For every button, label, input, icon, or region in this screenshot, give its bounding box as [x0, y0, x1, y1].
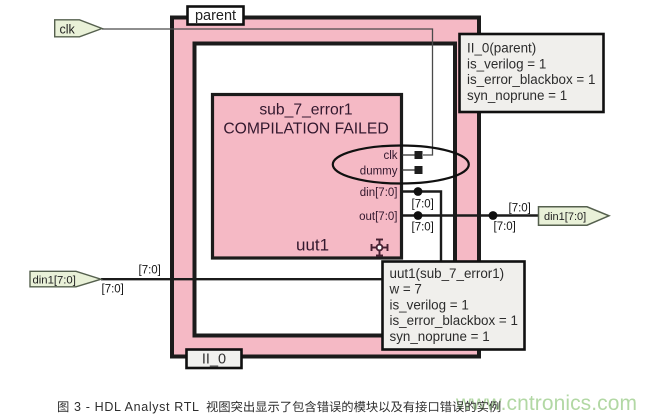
svg-text:sub_7_error1: sub_7_error1 [259, 102, 352, 119]
svg-text:out[7:0]: out[7:0] [359, 211, 397, 223]
svg-text:[7:0]: [7:0] [102, 284, 124, 296]
svg-text:II_0: II_0 [202, 352, 226, 368]
svg-text:syn_noprune = 1: syn_noprune = 1 [390, 329, 490, 344]
svg-text:is_error_blackbox = 1: is_error_blackbox = 1 [467, 72, 595, 87]
svg-text:is_verilog = 1: is_verilog = 1 [467, 56, 546, 71]
svg-text:II_0(parent): II_0(parent) [467, 41, 536, 56]
svg-text:3 - HDL Analyst RTL: 3 - HDL Analyst RTL [74, 400, 199, 414]
svg-text:COMPILATION FAILED: COMPILATION FAILED [223, 121, 388, 138]
svg-text:www.cntronics.com: www.cntronics.com [455, 392, 637, 415]
svg-text:din1[7:0]: din1[7:0] [544, 211, 586, 223]
svg-text:parent: parent [195, 8, 236, 24]
svg-text:din[7:0]: din[7:0] [360, 187, 398, 199]
svg-text:is_error_blackbox = 1: is_error_blackbox = 1 [390, 313, 518, 328]
svg-text:dummy: dummy [360, 166, 398, 178]
svg-text:[7:0]: [7:0] [139, 265, 161, 277]
svg-text:[7:0]: [7:0] [509, 203, 531, 215]
svg-text:is_verilog = 1: is_verilog = 1 [390, 297, 469, 312]
svg-text:[7:0]: [7:0] [494, 221, 516, 233]
svg-text:[7:0]: [7:0] [412, 222, 434, 234]
svg-text:uut1(sub_7_error1): uut1(sub_7_error1) [390, 266, 505, 281]
svg-text:uut1: uut1 [296, 236, 329, 255]
svg-text:w = 7: w = 7 [389, 282, 422, 297]
svg-text:clk: clk [60, 23, 76, 37]
svg-text:[7:0]: [7:0] [412, 199, 434, 211]
svg-text:din1[7:0]: din1[7:0] [33, 274, 76, 286]
svg-text:clk: clk [383, 150, 397, 162]
svg-text:syn_noprune = 1: syn_noprune = 1 [467, 88, 567, 103]
